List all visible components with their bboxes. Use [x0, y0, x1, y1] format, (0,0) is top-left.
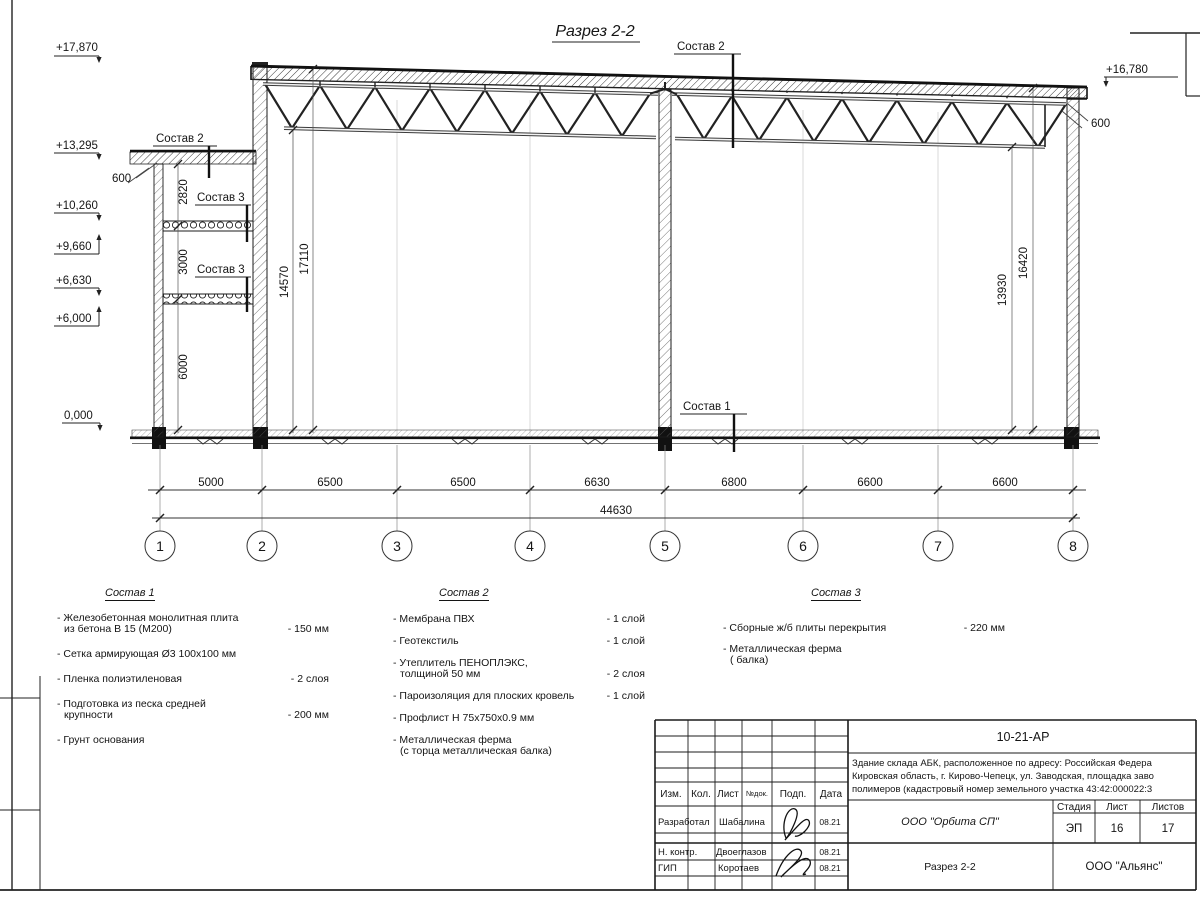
legend-item-value	[639, 735, 645, 745]
legend-row: - Пароизоляция для плоских кровель- 1 сл…	[393, 691, 645, 701]
callout-sostav3-lower: Состав 3	[195, 264, 251, 312]
legend-item-text: (с торца металлическая балка)	[393, 746, 552, 756]
legend-sostav1: Состав 1 - Железобетонная монолитная пли…	[57, 588, 329, 745]
legend-item-text: - Железобетонная монолитная плита	[57, 613, 238, 623]
elev-17870-label: +17,870	[56, 42, 98, 54]
interior-axis-lines	[293, 100, 938, 436]
dim-3000: 3000	[178, 249, 190, 275]
legend-item-value	[639, 658, 645, 668]
truss-left	[263, 81, 658, 138]
legend-item-value: - 1 слой	[601, 691, 645, 701]
truss-right	[672, 90, 1066, 147]
annex-slab-lower	[163, 294, 253, 304]
legend-item-value: - 150 мм	[282, 624, 329, 634]
drawing-sheet: 2820 3000 6000 14570 17110 13930 16420 +…	[0, 0, 1200, 900]
tb-col-izm: Изм.	[660, 789, 681, 800]
legend-sostav3-title: Состав 3	[811, 588, 861, 601]
elev-6630: +6,630	[54, 275, 102, 296]
dim-2820: 2820	[178, 179, 190, 205]
dim-14570: 14570	[279, 266, 291, 298]
tb-doc-number: 10-21-АР	[997, 730, 1050, 744]
legend-row: - Мембрана ПВХ- 1 слой	[393, 614, 645, 624]
legend-item-text: крупности	[57, 710, 113, 720]
tb-role-1: Разработал	[658, 817, 710, 828]
span-5-6: 6800	[721, 477, 747, 489]
legend-row: - Металлическая ферма	[723, 644, 1005, 654]
dim-16420: 16420	[1018, 247, 1030, 279]
elev-9660-label: +9,660	[56, 241, 92, 253]
tb-name-3: Коротаев	[718, 863, 759, 874]
tb-name-2: Двоеглазов	[716, 847, 767, 858]
ground-floor-slab	[130, 427, 1100, 451]
axis-bubble-1: 1	[156, 538, 164, 554]
axis-bubble-5: 5	[661, 538, 669, 554]
annex-left-wall	[154, 164, 163, 437]
tb-contractor: ООО "Альянс"	[1086, 861, 1163, 873]
tb-sheet-title: Разрез 2-2	[924, 861, 976, 873]
legend-row: - Сетка армирующая Ø3 100x100 мм	[57, 649, 329, 659]
elev-13295-label: +13,295	[56, 140, 98, 152]
wall-axis-8	[1067, 88, 1079, 437]
legend-item-value	[323, 735, 329, 745]
legend-row: - Профлист Н 75х750х0.9 мм	[393, 713, 645, 723]
bottom-dims: 5000 6500 6500 6630 6800 6600 6600 44630	[148, 445, 1086, 531]
elev-9660: +9,660	[54, 234, 102, 254]
legend-item-text: - Металлическая ферма	[393, 735, 512, 745]
legend-item-value	[999, 655, 1005, 665]
dim-13930: 13930	[997, 274, 1009, 306]
elev-10260: +10,260	[54, 200, 102, 221]
legend-item-value	[323, 649, 329, 659]
legend-item-value: - 1 слой	[601, 614, 645, 624]
legend-item-text: толщиной 50 мм	[393, 669, 480, 679]
elev-6000: +6,000	[54, 306, 102, 326]
axis-bubbles: 1 2 3 4 5 6 7 8	[145, 531, 1088, 561]
tb-col-data: Дата	[820, 789, 843, 800]
callout-sostav1: Состав 1	[680, 401, 747, 452]
legend-item-value	[999, 644, 1005, 654]
callout-sostav2-annex-label: Состав 2	[156, 133, 204, 145]
legend-item-value	[323, 699, 329, 709]
legend-item-text: - Геотекстиль	[393, 636, 459, 646]
axis-bubble-8: 8	[1069, 538, 1077, 554]
legend-item-text: ( балка)	[723, 655, 768, 665]
main-walls	[252, 62, 1079, 437]
callout-sostav2-top-label: Состав 2	[677, 41, 725, 53]
legend-item-value: - 2 слоя	[285, 674, 329, 684]
elev-16780: +16,780	[1103, 64, 1178, 87]
tb-date-2: 08.21	[819, 847, 841, 857]
legend-row: толщиной 50 мм- 2 слоя	[393, 669, 645, 679]
legend-row: из бетона В 15 (М200)- 150 мм	[57, 624, 329, 634]
tb-name-1: Шабалина	[719, 817, 766, 828]
span-4-5: 6630	[584, 477, 610, 489]
tb-stage-label: Стадия	[1057, 802, 1091, 813]
legend-row: - Железобетонная монолитная плита	[57, 613, 329, 623]
legend-item-value: - 2 слоя	[601, 669, 645, 679]
legend-row: - Утеплитель ПЕНОПЛЭКС,	[393, 658, 645, 668]
axis-bubble-4: 4	[526, 538, 534, 554]
dim-17110: 17110	[299, 243, 311, 274]
elev-0000: 0,000	[62, 410, 103, 431]
elev-6630-label: +6,630	[56, 275, 92, 287]
callout-sostav1-label: Состав 1	[683, 401, 731, 413]
page-title: Разрез 2-2	[555, 23, 634, 40]
legend-row: - Металлическая ферма	[393, 735, 645, 745]
span-6-7: 6600	[857, 477, 883, 489]
legend-item-value	[639, 746, 645, 756]
axis-bubble-7: 7	[934, 538, 942, 554]
legend-row: - Пленка полиэтиленовая- 2 слоя	[57, 674, 329, 684]
legend-sostav3: Состав 3 - Сборные ж/б плиты перекрытия-…	[723, 588, 1005, 665]
drawing-title: Разрез 2-2	[552, 23, 640, 42]
column-axis-5	[659, 90, 671, 437]
span-7-8: 6600	[992, 477, 1018, 489]
tb-org: ООО "Орбита СП"	[901, 816, 1000, 828]
axis-bubble-2: 2	[258, 538, 266, 554]
tb-date-1: 08.21	[819, 817, 841, 827]
axis-bubble-6: 6	[799, 538, 807, 554]
span-3-4: 6500	[450, 477, 476, 489]
section-drawing-svg: 2820 3000 6000 14570 17110 13930 16420 +…	[0, 0, 1200, 900]
legend-sostav2: Состав 2 - Мембрана ПВХ- 1 слой - Геотек…	[393, 588, 645, 756]
signature-2	[776, 849, 810, 877]
interior-height-dims: 14570 17110 13930 16420	[279, 65, 1037, 434]
legend-item-text: - Утеплитель ПЕНОПЛЭКС,	[393, 658, 528, 668]
elev-0000-label: 0,000	[64, 410, 93, 422]
legend-item-text: - Сетка армирующая Ø3 100x100 мм	[57, 649, 236, 659]
legend-row: (с торца металлическая балка)	[393, 746, 645, 756]
legend-item-value	[323, 613, 329, 623]
callout-sostav3-upper: Состав 3	[195, 192, 251, 242]
annex-roof	[130, 152, 256, 164]
legend-item-text: - Сборные ж/б плиты перекрытия	[723, 623, 886, 633]
title-block: Изм. Кол. Лист №док. Подп. Дата Разработ…	[655, 720, 1196, 890]
legend-row: крупности- 200 мм	[57, 710, 329, 720]
signature-1	[784, 809, 810, 840]
tb-date-3: 08.21	[819, 863, 841, 873]
tb-col-ndok: №док.	[746, 789, 768, 798]
span-total: 44630	[600, 505, 632, 517]
tb-list-value: 16	[1111, 823, 1124, 835]
legend-item-value: - 200 мм	[282, 710, 329, 720]
legend-sostav2-title: Состав 2	[439, 588, 489, 601]
legend-item-text: из бетона В 15 (М200)	[57, 624, 172, 634]
tb-role-2: Н. контр.	[658, 847, 697, 858]
tb-listov-label: Листов	[1152, 802, 1185, 813]
tb-col-kol: Кол.	[691, 789, 711, 800]
legend-item-text: - Пароизоляция для плоских кровель	[393, 691, 574, 701]
legend-item-text: - Мембрана ПВХ	[393, 614, 475, 624]
tb-role-3: ГИП	[658, 863, 677, 874]
legend-item-text: - Профлист Н 75х750х0.9 мм	[393, 713, 534, 723]
legend-row: - Подготовка из песка средней	[57, 699, 329, 709]
legend-row: - Грунт основания	[57, 735, 329, 745]
tb-stage-value: ЭП	[1066, 823, 1083, 835]
tb-project-line1: Здание склада АБК, расположенное по адре…	[852, 758, 1153, 769]
legend-item-value	[639, 713, 645, 723]
wall-axis-2	[253, 65, 267, 437]
tb-listov-value: 17	[1162, 823, 1175, 835]
axis-bubble-3: 3	[393, 538, 401, 554]
elev-16780-label: +16,780	[1106, 64, 1148, 76]
legend-item-text: - Металлическая ферма	[723, 644, 842, 654]
span-1-2: 5000	[198, 477, 224, 489]
legend-row: - Сборные ж/б плиты перекрытия- 220 мм	[723, 623, 1005, 633]
callout-sostav3-upper-label: Состав 3	[197, 192, 245, 204]
tb-project-line2: Кировская область, г. Кирово-Чепецк, ул.…	[852, 771, 1154, 782]
legend-sostav1-title: Состав 1	[105, 588, 155, 601]
span-2-3: 6500	[317, 477, 343, 489]
tb-list-label: Лист	[1106, 802, 1128, 813]
elev-10260-label: +10,260	[56, 200, 98, 212]
callout-sostav3-lower-label: Состав 3	[197, 264, 245, 276]
tb-col-list: Лист	[717, 789, 739, 800]
elev-17870: +17,870	[54, 42, 102, 63]
offset-600-left: 600	[112, 163, 157, 185]
elev-13295: +13,295	[54, 140, 102, 160]
legend-item-text: - Грунт основания	[57, 735, 144, 745]
callouts: Состав 2 Состав 2 Состав 3 Состав 3 Сост…	[153, 41, 747, 452]
legend-item-value: - 220 мм	[958, 623, 1005, 633]
annex-slab-upper	[163, 221, 253, 231]
legend-item-text: - Пленка полиэтиленовая	[57, 674, 182, 684]
elev-6000-label: +6,000	[56, 313, 92, 325]
elevation-marks: +17,870 +13,295 +10,260 +9,660 +6,630 +6…	[54, 42, 1178, 431]
dim-6000: 6000	[178, 354, 190, 380]
legend-item-text: - Подготовка из песка средней	[57, 699, 206, 709]
offset-600-right-label: 600	[1091, 118, 1110, 130]
legend-item-value: - 1 слой	[601, 636, 645, 646]
tb-col-podp: Подп.	[780, 789, 807, 800]
legend-row: - Геотекстиль- 1 слой	[393, 636, 645, 646]
tb-project-line3: полимеров (кадастровый номер земельного …	[852, 784, 1152, 795]
legend-row: ( балка)	[723, 655, 1005, 665]
